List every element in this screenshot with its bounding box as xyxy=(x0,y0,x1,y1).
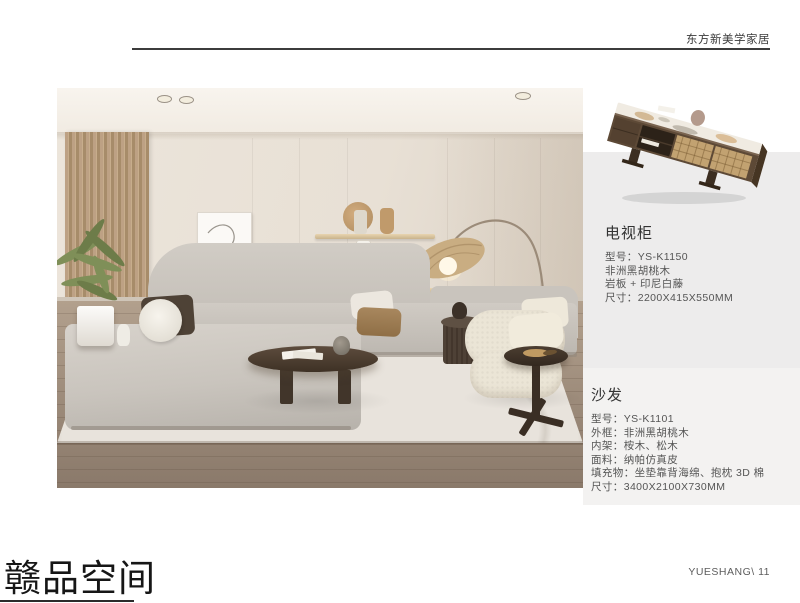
product-photo-tv-cabinet xyxy=(592,86,774,224)
spec-line: 面料：纳帕仿真皮 xyxy=(591,454,764,468)
spec-line: 岩板 + 印尼白藤 xyxy=(605,278,733,292)
spec-line: 尺寸：2200X415X550MM xyxy=(605,292,733,306)
spec-line: 外框：非洲黑胡桃木 xyxy=(591,427,764,441)
brand-text: 东方新美学家居 xyxy=(686,31,770,47)
spec-line: 尺寸：3400X2100X730MM xyxy=(591,481,764,495)
spec-line: 非洲黑胡桃木 xyxy=(605,265,733,279)
pillow-round-white xyxy=(139,299,182,342)
room-photo xyxy=(57,88,583,488)
series-title: 赣品空间 xyxy=(4,557,156,601)
chaise-base-shadow xyxy=(71,426,351,430)
side-table-vase xyxy=(452,302,467,319)
header-rule xyxy=(132,48,770,50)
floor-vase xyxy=(117,324,130,346)
coffee-table-vase xyxy=(333,336,350,355)
coffee-table-leg xyxy=(338,370,351,404)
series-title-underline xyxy=(0,600,134,602)
coffee-table-leg xyxy=(280,368,293,404)
catalog-page: 东方新美学家居 xyxy=(0,0,800,603)
coffee-table-shadow xyxy=(242,388,392,414)
spec-line: 型号：YS-K1150 xyxy=(605,251,733,265)
tv-cabinet-info: 电视柜 型号：YS-K1150 非洲黑胡桃木 岩板 + 印尼白藤 尺寸：2200… xyxy=(605,224,733,305)
spec-line: 型号：YS-K1101 xyxy=(591,413,764,427)
spec-line: 填充物：坐垫靠背海绵、抱枕 3D 棉 xyxy=(591,467,764,481)
pillow-tan xyxy=(356,307,401,337)
page-number: YUESHANG\ 11 xyxy=(688,566,770,578)
plant-pot xyxy=(77,306,114,346)
sofa-title: 沙发 xyxy=(591,386,764,406)
tv-cabinet-title: 电视柜 xyxy=(605,224,733,244)
spec-line: 内架：桉木、松木 xyxy=(591,440,764,454)
sofa-info: 沙发 型号：YS-K1101 外框：非洲黑胡桃木 内架：桉木、松木 面料：纳帕仿… xyxy=(591,386,764,494)
